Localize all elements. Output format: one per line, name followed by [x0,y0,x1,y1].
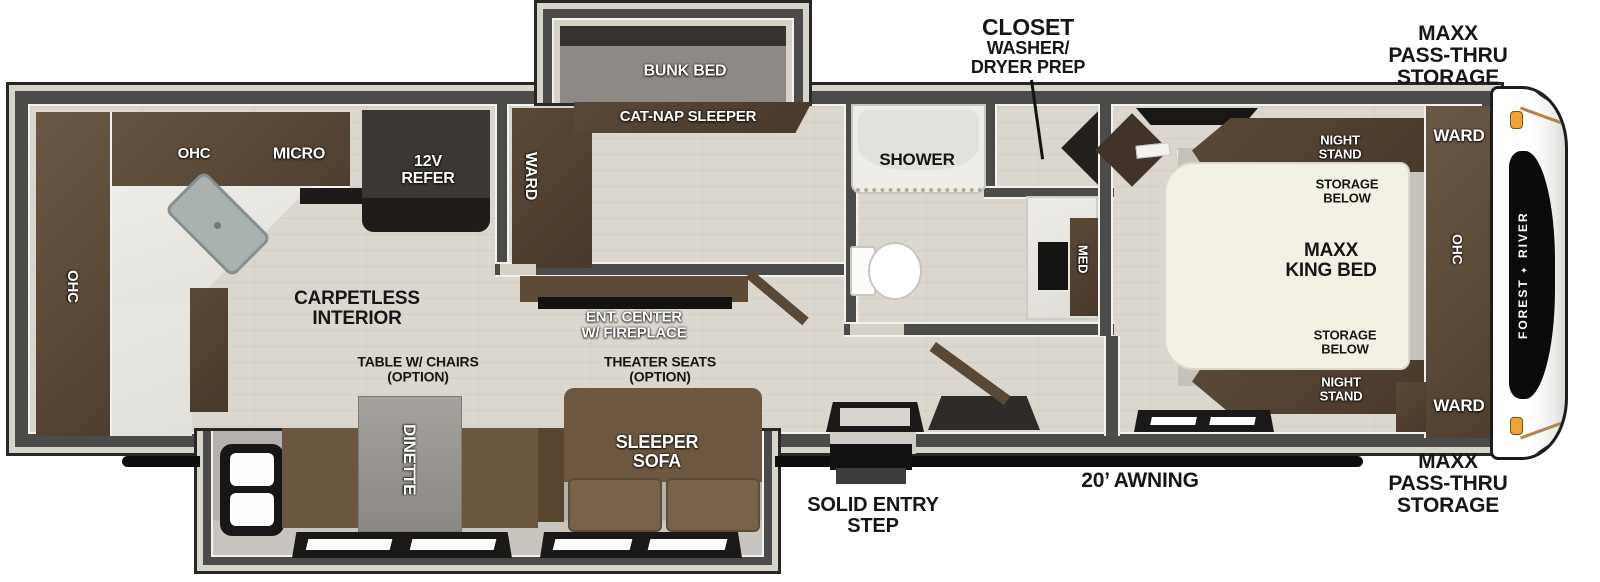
brand-logo-text: FOREST ✦ RIVER [1513,151,1533,399]
label-carpetless-line1: CARPETLESS [294,289,420,309]
label-kitchen-ohc-rear: OHC [64,270,80,303]
label-ent-center-line1: ENT. CENTER [581,309,686,325]
shower-glass-door [856,188,982,192]
label-refer-line1: 12V [401,154,454,171]
label-dinette: DINETTE [400,424,418,495]
dinette-bench-right [462,428,538,528]
bathroom-door-opening [850,324,904,335]
label-storage-front-bottom-line3: STORAGE [1388,495,1507,517]
label-nightstand-top-line2: STAND [1319,147,1362,161]
label-ward-top: WARD [1433,127,1484,145]
label-storage-front-bottom-line2: PASS-THRU [1388,473,1507,495]
entry-step [830,444,912,470]
sleeper-sofa-seat [666,478,760,532]
bedroom-steps [928,396,1040,430]
entertainment-tv [538,297,732,309]
label-awning: 20’ AWNING [1081,470,1198,492]
toilet-bowl [868,242,922,300]
bedroom-window [1134,410,1274,432]
slideout-window-2 [540,532,742,558]
label-nightstand-bottom-line2: STAND [1320,389,1363,403]
label-table-option-line1: TABLE W/ CHAIRS [357,354,478,369]
dinette-bench-left [282,428,360,528]
label-sleeper-sofa-line1: SLEEPER [616,433,699,452]
label-closet-line3: DRYER PREP [971,58,1085,77]
label-bunk-ward: WARD [521,152,538,200]
cap-marker-light-bottom [1510,417,1523,435]
vanity-sink [1036,240,1070,292]
bedroom-ward-return [1396,382,1426,432]
slideout-end-window-pane [230,493,274,526]
bedroom-window-pane [1150,417,1197,425]
bunk-slideout [534,0,812,106]
cap-decal-bottom [1527,431,1568,460]
bedroom-ward-column [1424,106,1496,438]
label-ent-center-line2: W/ FIREPLACE [581,325,686,341]
label-ward-bottom: WARD [1433,397,1484,415]
slideout-window-pane [648,539,728,550]
bunkroom-left-wall [495,104,509,264]
label-kitchen-micro: MICRO [273,147,325,164]
label-storage-bottom-line2: BELOW [1314,342,1377,356]
kitchen-pantry-cabinet [190,288,228,412]
cap-marker-light-top [1510,111,1523,129]
label-storage-front-top-line1: MAXX [1388,23,1507,45]
label-kitchen-ohc-top: OHC [178,146,211,162]
label-storage-front-top-line2: PASS-THRU [1388,45,1507,67]
label-theater-option-line1: THEATER SEATS [604,354,716,369]
sofa-armrest [538,428,564,522]
label-entry-step-line1: SOLID ENTRY [807,495,939,516]
slideout-window-pane [553,539,633,550]
kitchen-cooktop [300,188,362,204]
label-table-option-line2: (OPTION) [357,369,478,384]
label-cat-nap-sleeper: CAT-NAP SLEEPER [620,109,756,125]
label-sleeper-sofa-line2: SOFA [616,452,699,471]
label-nightstand-bottom-line1: NIGHT [1320,375,1363,389]
label-med: MED [1076,245,1090,273]
label-bunk-bed: BUNK BED [644,64,727,81]
refrigerator-door [362,198,490,232]
label-refer-line2: REFER [401,171,454,188]
label-king-bed-line1: MAXX [1285,241,1376,261]
label-shower: SHOWER [879,151,954,169]
label-closet-title: CLOSET [971,15,1085,39]
label-bedroom-ohc: OHC [1450,234,1465,265]
bunk-pillow [560,26,786,46]
brand-emblem-icon: ✦ [1518,258,1528,278]
sink-drain [214,222,221,229]
slideout-end-window-pane [230,453,274,486]
label-storage-top-line1: STORAGE [1316,177,1379,191]
slideout-window-1 [292,532,512,558]
label-carpetless-line2: INTERIOR [294,309,420,329]
brand-line1: FOREST [1516,278,1530,339]
entry-landing-mat [840,408,911,426]
bunkroom-door-opening [500,264,536,275]
label-king-bed-line2: KING BED [1285,261,1376,281]
bedroom-step-wall [1104,336,1120,436]
label-entry-step-line2: STEP [807,516,939,537]
label-storage-top-line2: BELOW [1316,191,1379,205]
sleeper-sofa-seat [568,478,662,532]
label-closet-line2: WASHER/ [971,39,1085,58]
label-storage-front-bottom-line1: MAXX [1388,451,1507,473]
label-storage-bottom-line1: STORAGE [1314,328,1377,342]
entry-landing [826,402,924,432]
label-theater-option-line2: (OPTION) [604,369,716,384]
floorplan-canvas: OHC MICRO OHC 12V REFER WARD CAT-NAP SLE… [0,0,1600,582]
awning-bar-left [122,456,200,467]
brand-line2: RIVER [1516,211,1530,258]
slideout-window-pane [306,539,392,550]
slideout-window-pane [409,539,495,550]
bedroom-window-pane [1209,417,1256,425]
label-storage-front-top-line3: STORAGE [1388,67,1507,89]
entry-step-lower [836,468,906,484]
slideout-end-window [220,444,284,536]
label-nightstand-top-line1: NIGHT [1319,133,1362,147]
front-cap: FOREST ✦ RIVER [1490,86,1568,460]
